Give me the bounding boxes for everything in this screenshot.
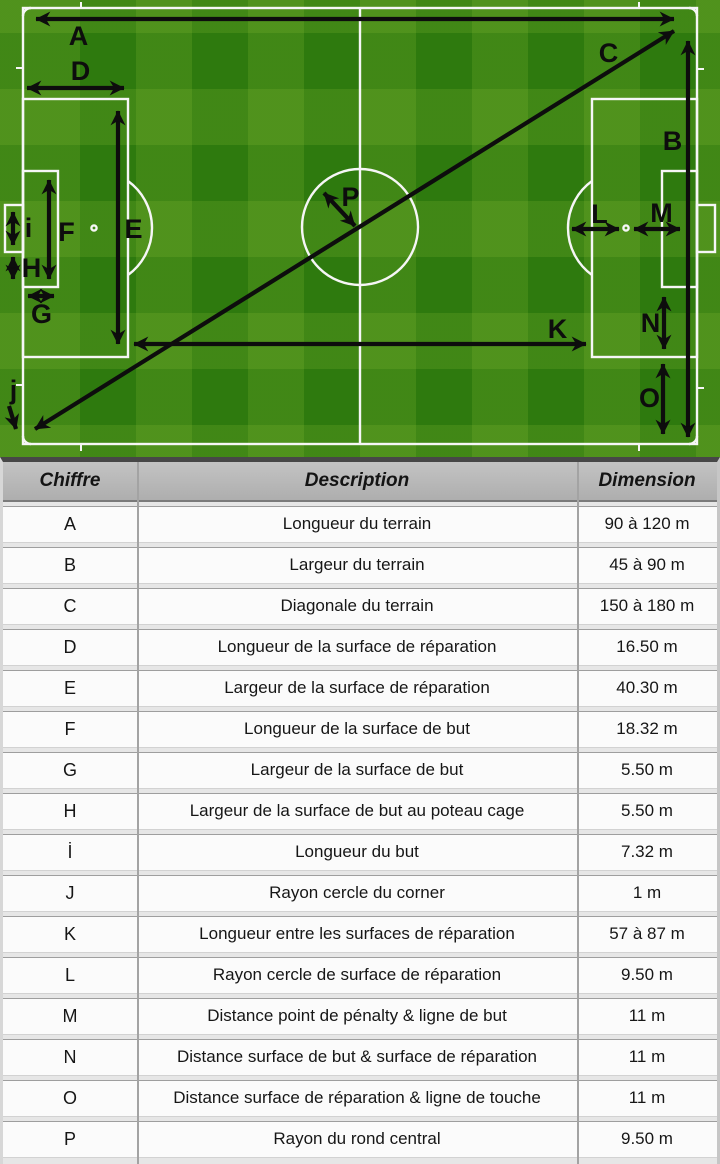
label-h: H bbox=[22, 253, 41, 283]
cell-description: Longueur de la surface de réparation bbox=[137, 630, 577, 665]
cell-description: Longueur du terrain bbox=[137, 507, 577, 542]
table-row-d: D Longueur de la surface de réparation 1… bbox=[3, 629, 717, 666]
cell-dimension: 57 à 87 m bbox=[577, 917, 717, 952]
arrow-j-corner-radius bbox=[9, 406, 16, 429]
cell-description: Largeur de la surface de but au poteau c… bbox=[137, 794, 577, 829]
cell-chiffre: M bbox=[3, 999, 137, 1034]
label-k: K bbox=[548, 314, 568, 344]
cell-chiffre: D bbox=[3, 630, 137, 665]
label-j: j bbox=[9, 375, 17, 405]
label-i: i bbox=[25, 213, 32, 243]
field-drawing: A B C D E F G H i j K L M N O P bbox=[0, 0, 720, 457]
cell-chiffre: N bbox=[3, 1040, 137, 1075]
cell-description: Longueur entre les surfaces de réparatio… bbox=[137, 917, 577, 952]
table-row-n: N Distance surface de but & surface de r… bbox=[3, 1039, 717, 1076]
cell-dimension: 150 à 180 m bbox=[577, 589, 717, 624]
cell-chiffre: O bbox=[3, 1081, 137, 1116]
table-row-m: M Distance point de pénalty & ligne de b… bbox=[3, 998, 717, 1035]
cell-chiffre: A bbox=[3, 507, 137, 542]
cell-description: Distance surface de but & surface de rép… bbox=[137, 1040, 577, 1075]
column-divider-1 bbox=[137, 462, 139, 1164]
cell-dimension: 11 m bbox=[577, 1040, 717, 1075]
dimensions-table: Chiffre Description Dimension A Longueur… bbox=[0, 457, 720, 1164]
cell-dimension: 11 m bbox=[577, 999, 717, 1034]
cell-description: Distance point de pénalty & ligne de but bbox=[137, 999, 577, 1034]
table-row-a: A Longueur du terrain 90 à 120 m bbox=[3, 506, 717, 543]
cell-chiffre: F bbox=[3, 712, 137, 747]
cell-dimension: 16.50 m bbox=[577, 630, 717, 665]
cell-description: Rayon du rond central bbox=[137, 1122, 577, 1157]
label-n: N bbox=[641, 308, 660, 338]
label-p: P bbox=[341, 182, 359, 212]
cell-dimension: 1 m bbox=[577, 876, 717, 911]
column-header-chiffre: Chiffre bbox=[3, 462, 137, 500]
label-l: L bbox=[591, 199, 607, 229]
cell-dimension: 5.50 m bbox=[577, 753, 717, 788]
label-g: G bbox=[31, 299, 51, 329]
dimension-arrows bbox=[9, 19, 688, 437]
cell-description: Longueur de la surface de but bbox=[137, 712, 577, 747]
table-header-row: Chiffre Description Dimension bbox=[3, 462, 717, 502]
cell-dimension: 90 à 120 m bbox=[577, 507, 717, 542]
cell-chiffre: K bbox=[3, 917, 137, 952]
label-o: O bbox=[639, 383, 659, 413]
penalty-spot-left bbox=[91, 225, 96, 230]
label-c: C bbox=[599, 38, 618, 68]
cell-chiffre: E bbox=[3, 671, 137, 706]
soccer-field-diagram: A B C D E F G H i j K L M N O P bbox=[0, 0, 720, 457]
cell-dimension: 45 à 90 m bbox=[577, 548, 717, 583]
cell-description: Rayon cercle de surface de réparation bbox=[137, 958, 577, 993]
table-row-i: İ Longueur du but 7.32 m bbox=[3, 834, 717, 871]
column-header-dimension: Dimension bbox=[577, 462, 717, 500]
cell-dimension: 5.50 m bbox=[577, 794, 717, 829]
label-f: F bbox=[58, 217, 74, 247]
cell-chiffre: L bbox=[3, 958, 137, 993]
table-row-l: L Rayon cercle de surface de réparation … bbox=[3, 957, 717, 994]
cell-dimension: 40.30 m bbox=[577, 671, 717, 706]
label-a: A bbox=[69, 21, 88, 51]
cell-chiffre: İ bbox=[3, 835, 137, 870]
cell-dimension: 11 m bbox=[577, 1081, 717, 1116]
cell-description: Largeur du terrain bbox=[137, 548, 577, 583]
cell-chiffre: J bbox=[3, 876, 137, 911]
cell-description: Largeur de la surface de but bbox=[137, 753, 577, 788]
goal-right bbox=[697, 205, 715, 252]
cell-chiffre: C bbox=[3, 589, 137, 624]
label-b: B bbox=[663, 126, 682, 156]
table-row-k: K Longueur entre les surfaces de réparat… bbox=[3, 916, 717, 953]
table-row-c: C Diagonale du terrain 150 à 180 m bbox=[3, 588, 717, 625]
cell-description: Largeur de la surface de réparation bbox=[137, 671, 577, 706]
table-row-f: F Longueur de la surface de but 18.32 m bbox=[3, 711, 717, 748]
cell-description: Rayon cercle du corner bbox=[137, 876, 577, 911]
cell-description: Distance surface de réparation & ligne d… bbox=[137, 1081, 577, 1116]
table-row-j: J Rayon cercle du corner 1 m bbox=[3, 875, 717, 912]
label-e: E bbox=[124, 214, 141, 244]
column-divider-2 bbox=[577, 462, 579, 1164]
table-row-p: P Rayon du rond central 9.50 m bbox=[3, 1121, 717, 1158]
cell-chiffre: G bbox=[3, 753, 137, 788]
cell-dimension: 9.50 m bbox=[577, 958, 717, 993]
cell-chiffre: B bbox=[3, 548, 137, 583]
cell-description: Diagonale du terrain bbox=[137, 589, 577, 624]
cell-chiffre: P bbox=[3, 1122, 137, 1157]
label-d: D bbox=[71, 56, 90, 86]
label-m: M bbox=[650, 198, 672, 228]
cell-chiffre: H bbox=[3, 794, 137, 829]
cell-dimension: 7.32 m bbox=[577, 835, 717, 870]
table-row-o: O Distance surface de réparation & ligne… bbox=[3, 1080, 717, 1117]
table-row-b: B Largeur du terrain 45 à 90 m bbox=[3, 547, 717, 584]
cell-dimension: 18.32 m bbox=[577, 712, 717, 747]
table-row-h: H Largeur de la surface de but au poteau… bbox=[3, 793, 717, 830]
table-row-g: G Largeur de la surface de but 5.50 m bbox=[3, 752, 717, 789]
table-row-e: E Largeur de la surface de réparation 40… bbox=[3, 670, 717, 707]
cell-description: Longueur du but bbox=[137, 835, 577, 870]
column-header-description: Description bbox=[137, 462, 577, 500]
penalty-spot-right bbox=[623, 225, 628, 230]
cell-dimension: 9.50 m bbox=[577, 1122, 717, 1157]
